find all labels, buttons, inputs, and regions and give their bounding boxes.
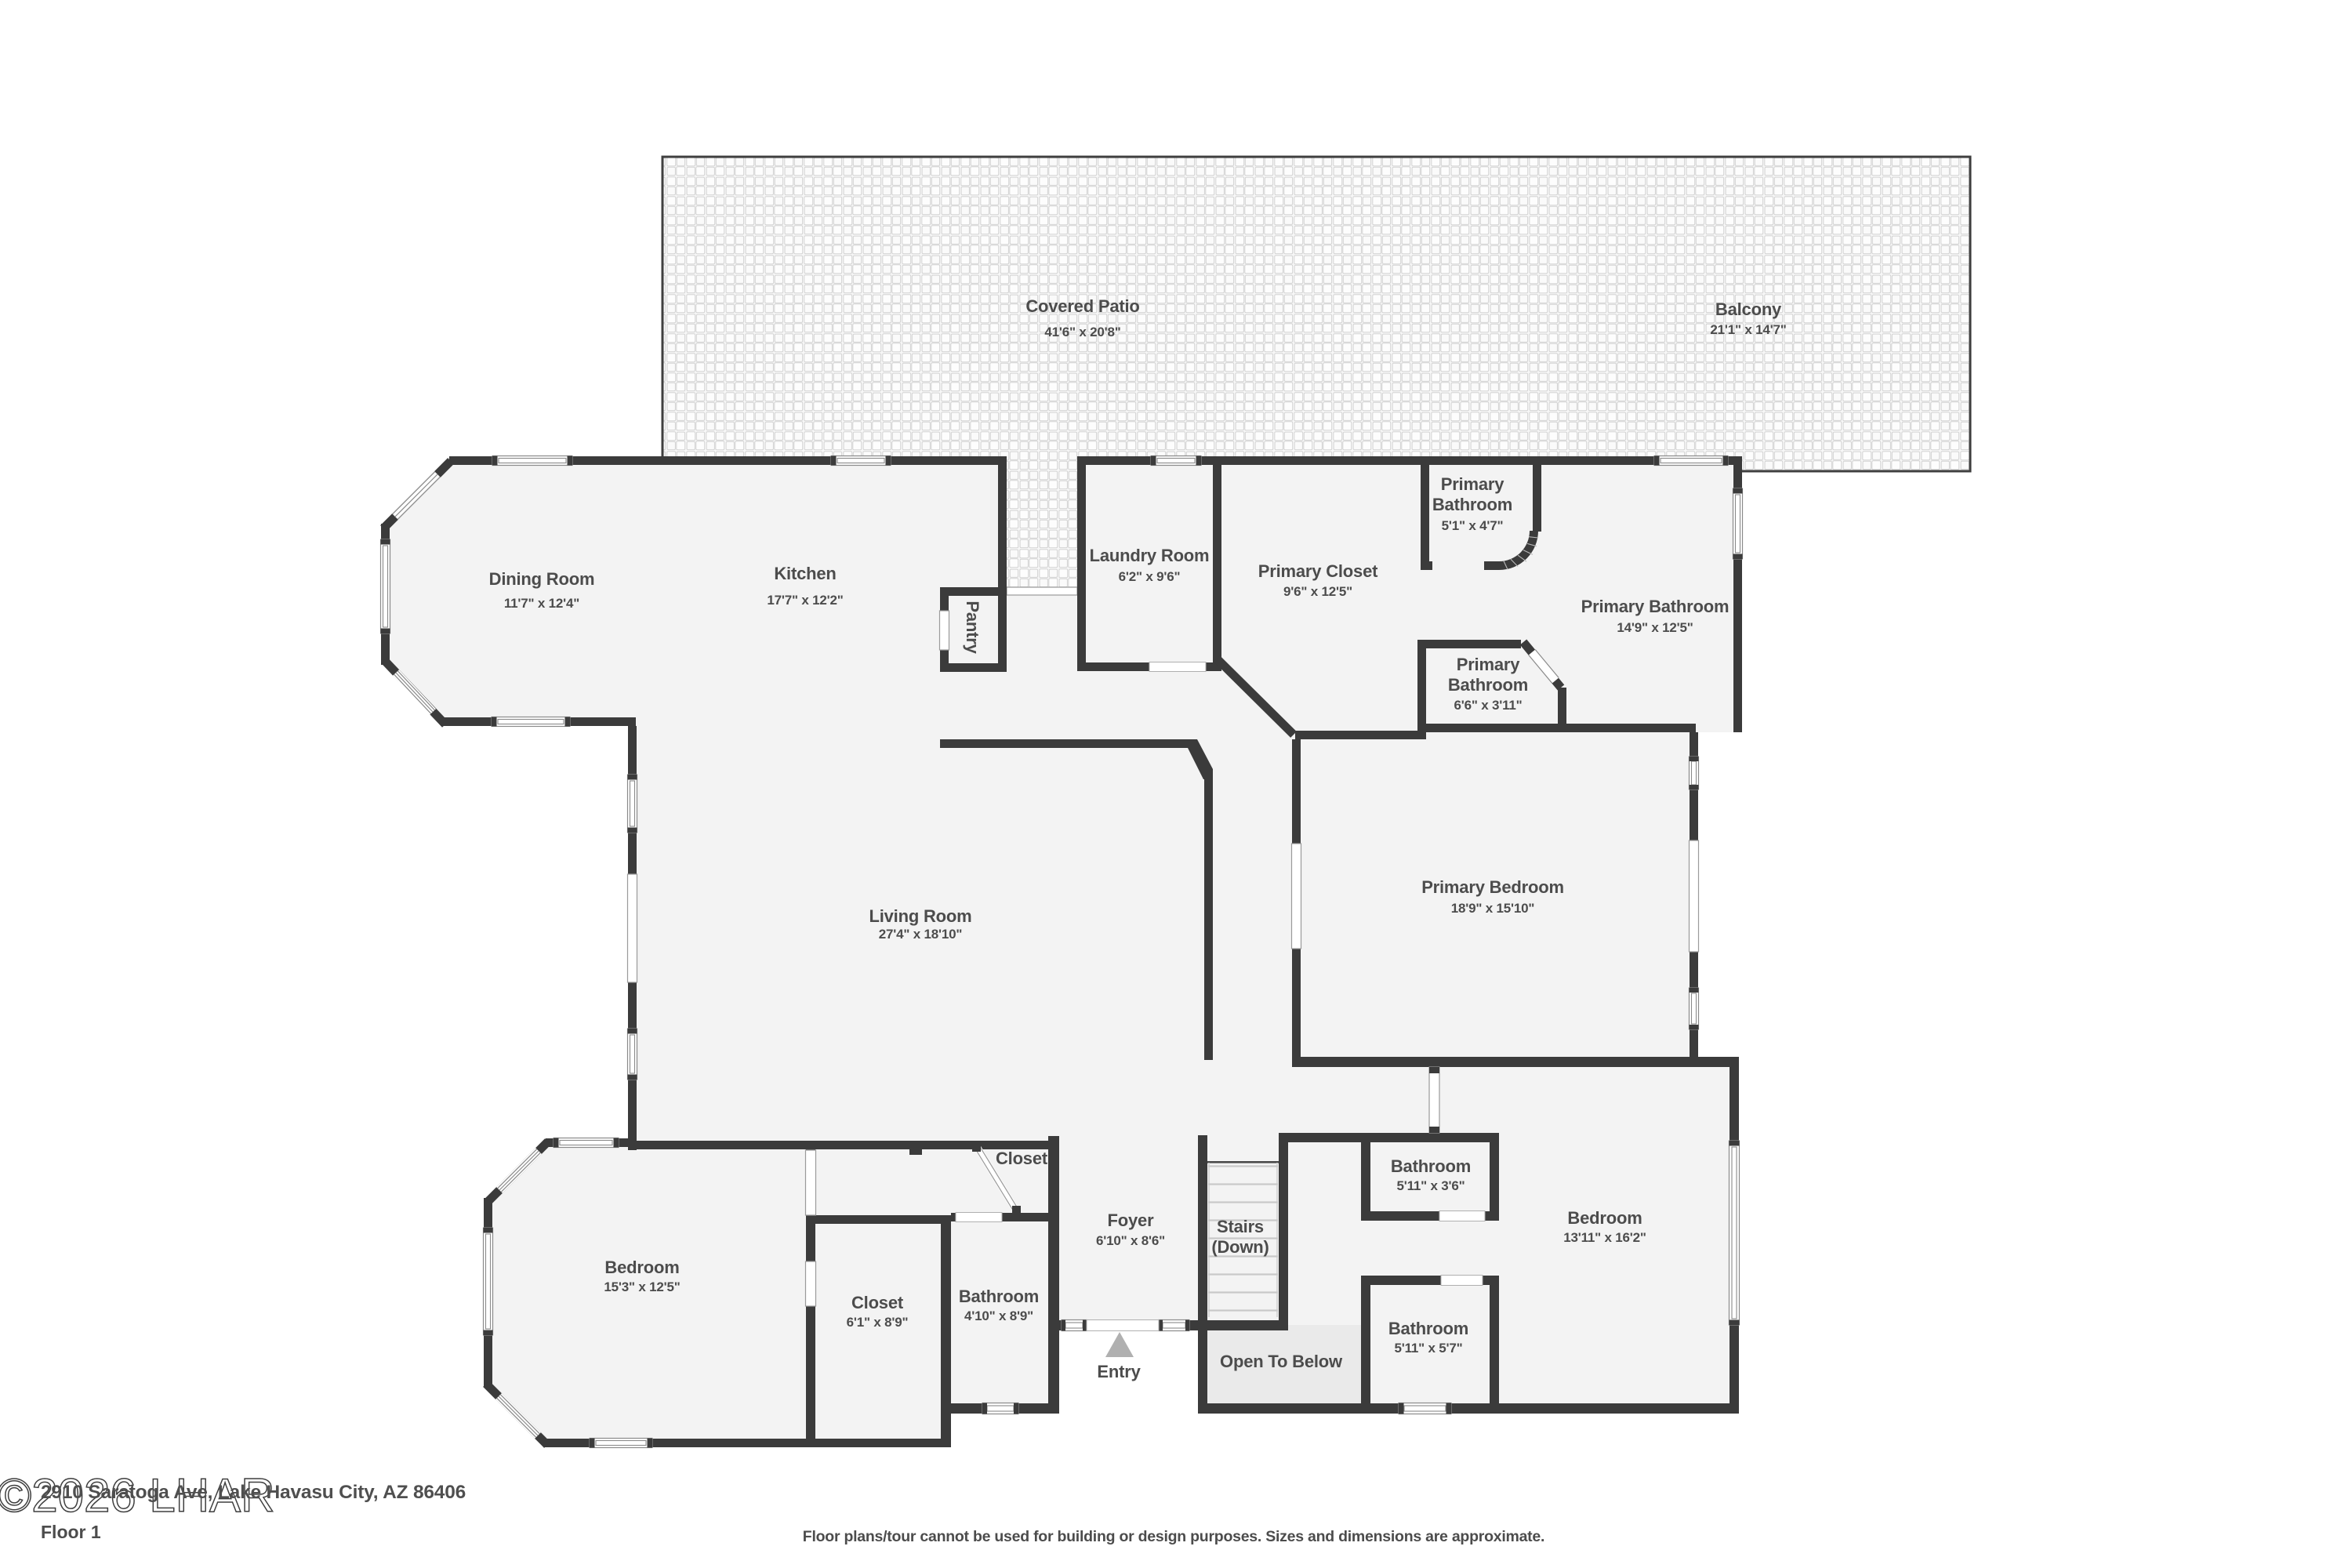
svg-text:Floor plans/tour cannot be use: Floor plans/tour cannot be used for buil… — [803, 1528, 1544, 1545]
svg-text:5'1" x 4'7": 5'1" x 4'7" — [1442, 518, 1504, 533]
svg-text:21'1" x 14'7": 21'1" x 14'7" — [1710, 322, 1786, 337]
svg-text:6'2" x 9'6": 6'2" x 9'6" — [1119, 569, 1181, 584]
svg-text:Bedroom: Bedroom — [604, 1258, 679, 1277]
svg-text:5'11" x 3'6": 5'11" x 3'6" — [1396, 1178, 1465, 1193]
svg-text:Foyer: Foyer — [1108, 1210, 1155, 1230]
svg-text:Primary Bathroom: Primary Bathroom — [1581, 597, 1730, 616]
svg-text:Bathroom: Bathroom — [1388, 1319, 1468, 1338]
svg-text:Entry: Entry — [1097, 1362, 1141, 1381]
svg-text:17'7" x 12'2": 17'7" x 12'2" — [767, 593, 843, 608]
svg-text:13'11" x 16'2": 13'11" x 16'2" — [1563, 1230, 1646, 1245]
svg-text:Closet: Closet — [851, 1293, 904, 1312]
svg-text:Closet: Closet — [996, 1149, 1048, 1168]
svg-text:Balcony: Balcony — [1715, 299, 1782, 319]
svg-text:Primary Closet: Primary Closet — [1258, 561, 1378, 581]
svg-text:2910 Saratoga Ave, Lake Havasu: 2910 Saratoga Ave, Lake Havasu City, AZ … — [41, 1482, 466, 1503]
svg-text:6'1" x 8'9": 6'1" x 8'9" — [847, 1315, 909, 1330]
svg-text:5'11" x 5'7": 5'11" x 5'7" — [1394, 1341, 1462, 1356]
svg-text:Pantry: Pantry — [963, 601, 982, 654]
svg-text:Covered Patio: Covered Patio — [1025, 296, 1139, 316]
svg-text:6'10" x 8'6": 6'10" x 8'6" — [1096, 1233, 1165, 1248]
svg-text:Primary: Primary — [1457, 655, 1521, 674]
svg-text:14'9" x 12'5": 14'9" x 12'5" — [1617, 620, 1693, 635]
svg-text:15'3" x 12'5": 15'3" x 12'5" — [604, 1279, 680, 1294]
svg-text:Floor 1: Floor 1 — [41, 1522, 101, 1542]
svg-text:Dining Room: Dining Room — [489, 569, 595, 589]
svg-text:Open To Below: Open To Below — [1220, 1352, 1343, 1371]
svg-text:Stairs: Stairs — [1217, 1217, 1264, 1236]
svg-text:4'10" x 8'9": 4'10" x 8'9" — [964, 1308, 1033, 1323]
svg-text:Bathroom: Bathroom — [959, 1287, 1039, 1306]
svg-text:Primary Bedroom: Primary Bedroom — [1421, 877, 1564, 897]
svg-text:6'6" x 3'11": 6'6" x 3'11" — [1454, 698, 1522, 713]
svg-text:Kitchen: Kitchen — [774, 564, 836, 583]
svg-text:Living Room: Living Room — [869, 906, 971, 926]
svg-text:Primary: Primary — [1441, 474, 1505, 494]
svg-text:(Down): (Down) — [1211, 1237, 1269, 1257]
svg-text:27'4" x 18'10": 27'4" x 18'10" — [879, 927, 963, 942]
svg-text:18'9" x 15'10": 18'9" x 15'10" — [1451, 901, 1535, 916]
svg-text:Laundry Room: Laundry Room — [1090, 546, 1210, 565]
svg-text:Bathroom: Bathroom — [1448, 675, 1528, 695]
svg-text:Bedroom: Bedroom — [1567, 1208, 1642, 1228]
svg-text:Bathroom: Bathroom — [1391, 1156, 1471, 1176]
svg-text:Bathroom: Bathroom — [1432, 495, 1512, 514]
svg-text:11'7" x 12'4": 11'7" x 12'4" — [504, 596, 579, 611]
svg-text:9'6" x 12'5": 9'6" x 12'5" — [1283, 584, 1352, 599]
svg-text:41'6" x 20'8": 41'6" x 20'8" — [1044, 325, 1120, 339]
